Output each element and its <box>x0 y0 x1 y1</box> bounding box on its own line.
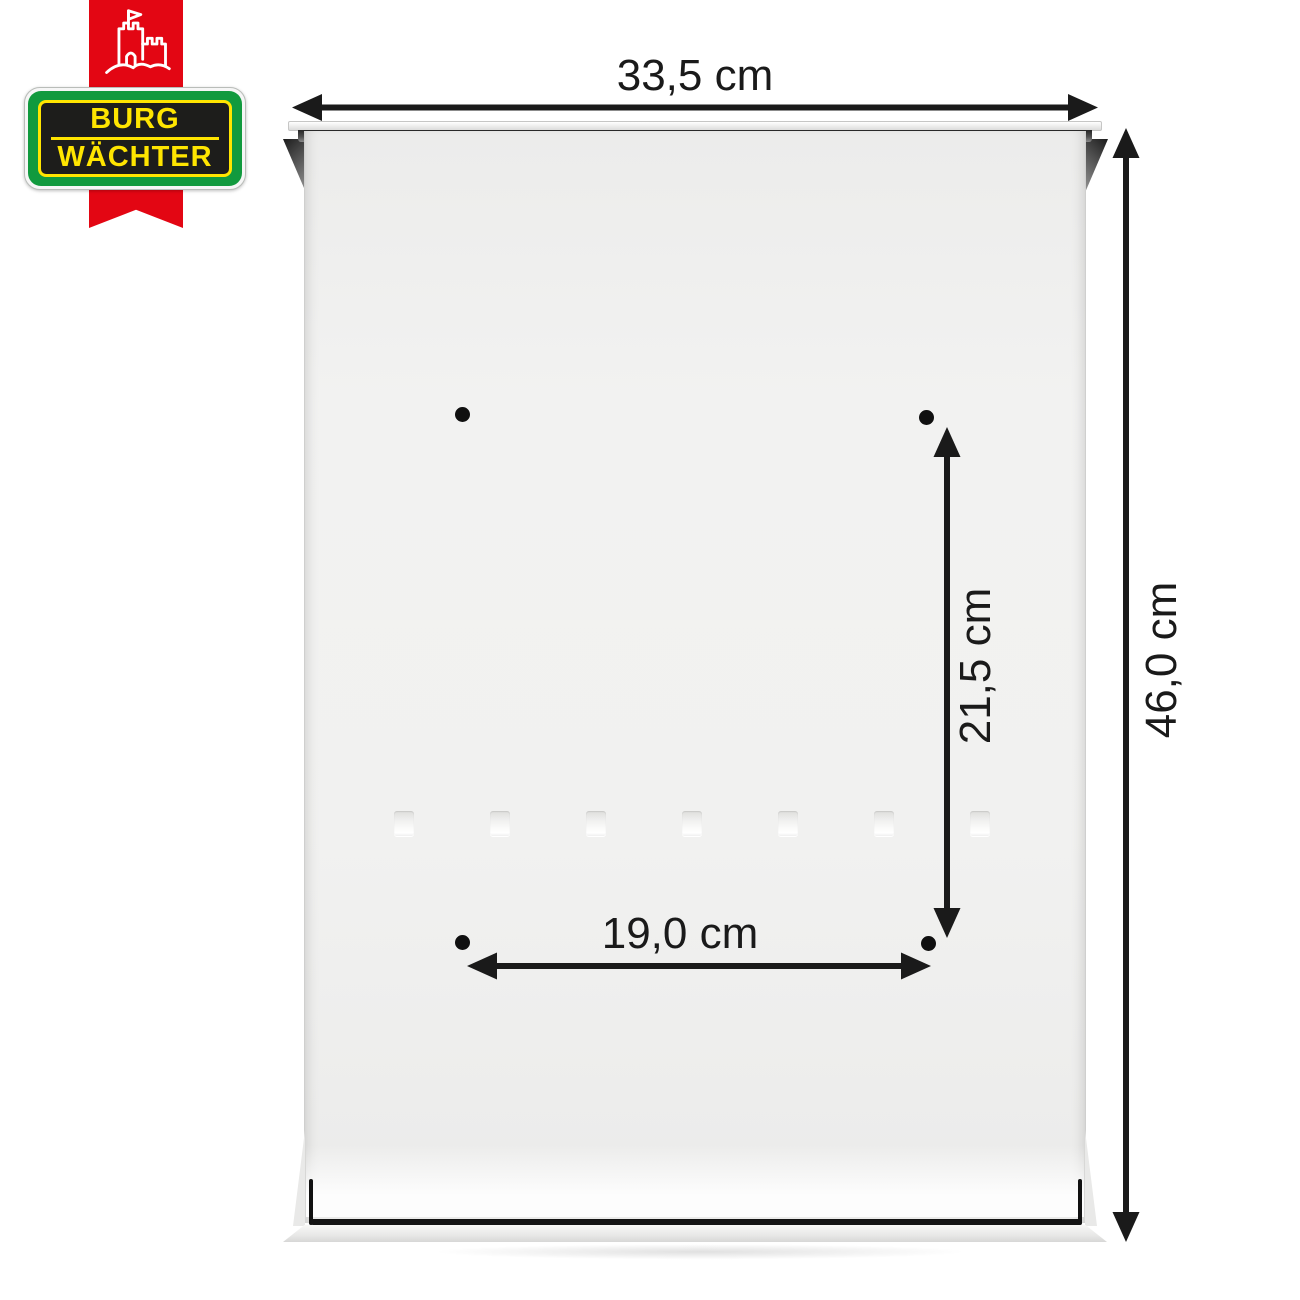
hole-vertical-arrowhead-top <box>934 427 961 457</box>
width-dimension-line <box>316 105 1074 111</box>
width-arrowhead-right <box>1068 94 1098 121</box>
hole-horizontal-dimension-line <box>493 963 905 969</box>
hole-horizontal-arrowhead-left <box>467 953 497 980</box>
width-arrowhead-left <box>292 94 322 121</box>
overall-width-label: 33,5 cm <box>585 53 805 99</box>
hole-horizontal-arrowhead-right <box>901 953 931 980</box>
hole-vertical-arrowhead-bottom <box>934 908 961 938</box>
hole-vertical-dimension-line <box>944 453 950 912</box>
overall-height-label: 46,0 cm <box>1139 550 1185 770</box>
hole-spacing-horizontal-label: 19,0 cm <box>570 911 790 957</box>
hole-spacing-vertical-label: 21,5 cm <box>953 556 999 776</box>
product-image: BURG WÄCHTER <box>0 0 1300 1300</box>
height-arrowhead-top <box>1113 128 1140 158</box>
dimension-arrows <box>0 0 1300 1300</box>
height-arrowhead-bottom <box>1113 1212 1140 1242</box>
height-dimension-line <box>1123 154 1129 1216</box>
